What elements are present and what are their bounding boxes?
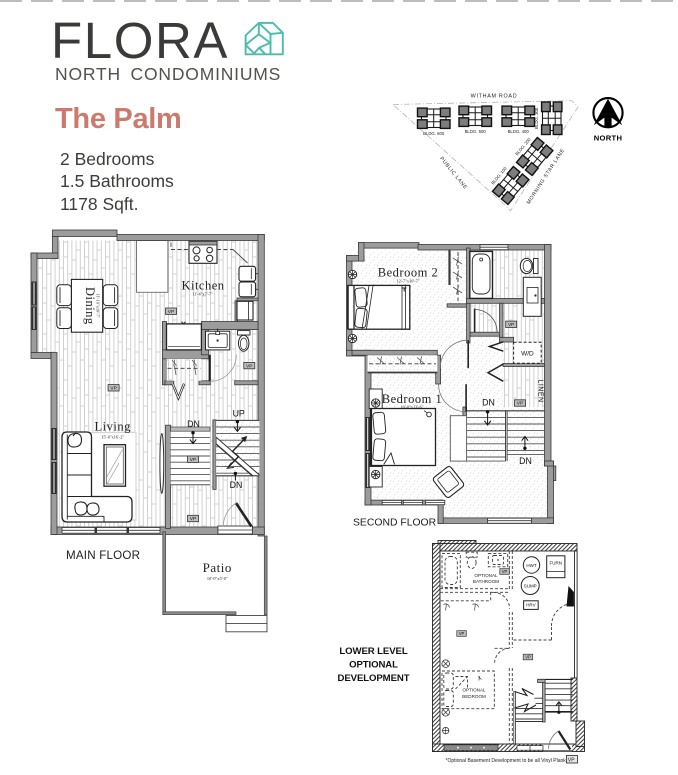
svg-text:Bedroom 2: Bedroom 2 — [378, 266, 438, 280]
svg-text:Living: Living — [95, 420, 132, 434]
svg-text:OPTIONAL: OPTIONAL — [462, 688, 486, 693]
svg-text:HRV: HRV — [526, 603, 535, 608]
svg-text:10'-0"x5'-0": 10'-0"x5'-0" — [207, 576, 228, 581]
svg-text:WITHAM ROAD: WITHAM ROAD — [471, 94, 518, 100]
svg-text:BLDG. 300: BLDG. 300 — [534, 107, 539, 129]
svg-text:BLDG. 400: BLDG. 400 — [508, 129, 530, 134]
svg-text:UP: UP — [233, 409, 245, 419]
svg-text:HWT: HWT — [526, 563, 536, 568]
svg-text:BLDG. 600: BLDG. 600 — [423, 131, 445, 136]
svg-text:VP: VP — [517, 401, 523, 407]
svg-text:OPTIONAL: OPTIONAL — [474, 573, 498, 578]
svg-text:DEVELOPMENT: DEVELOPMENT — [338, 673, 410, 684]
svg-text:NORTH: NORTH — [594, 134, 623, 143]
svg-text:VP: VP — [502, 569, 508, 574]
svg-text:12'-7"x10'-7": 12'-7"x10'-7" — [397, 279, 420, 284]
svg-text:FURN: FURN — [550, 561, 563, 566]
svg-text:DN: DN — [230, 480, 243, 490]
svg-text:Patio: Patio — [203, 560, 232, 575]
svg-text:VP: VP — [568, 758, 575, 764]
svg-text:MAIN FLOOR: MAIN FLOOR — [66, 549, 140, 562]
svg-text:VP: VP — [508, 322, 514, 328]
svg-text:W/D: W/D — [521, 351, 534, 358]
svg-text:DN: DN — [482, 398, 495, 408]
svg-text:VP: VP — [110, 386, 116, 392]
svg-text:BEDROOM: BEDROOM — [462, 694, 486, 699]
svg-text:VP: VP — [246, 363, 252, 369]
svg-text:DN: DN — [187, 419, 200, 429]
svg-text:LINEN: LINEN — [537, 379, 544, 402]
svg-text:VP: VP — [459, 631, 465, 636]
svg-text:DN: DN — [519, 456, 532, 466]
svg-text:BATHROOM: BATHROOM — [473, 579, 499, 584]
svg-text:11'-10"x10'-7": 11'-10"x10'-7" — [96, 293, 101, 318]
svg-text:SUMP: SUMP — [524, 583, 537, 588]
svg-text:11'-4"x7'-7": 11'-4"x7'-7" — [192, 291, 213, 296]
svg-text:VP: VP — [168, 309, 174, 315]
svg-text:15'-0"x16'-2": 15'-0"x16'-2" — [101, 435, 124, 440]
svg-text:OPTIONAL: OPTIONAL — [349, 659, 398, 670]
svg-text:*Optional Basement Development: *Optional Basement Development to be all… — [446, 758, 567, 764]
svg-text:VP: VP — [190, 516, 196, 522]
svg-text:Dining: Dining — [83, 287, 97, 325]
svg-text:BLDG. 500: BLDG. 500 — [465, 129, 487, 134]
svg-text:PUBLIC LANE: PUBLIC LANE — [438, 156, 468, 191]
svg-text:LOWER LEVEL: LOWER LEVEL — [339, 646, 407, 657]
svg-text:SECOND FLOOR: SECOND FLOOR — [353, 518, 437, 529]
svg-text:VP: VP — [190, 457, 196, 463]
svg-text:VP: VP — [525, 655, 531, 660]
